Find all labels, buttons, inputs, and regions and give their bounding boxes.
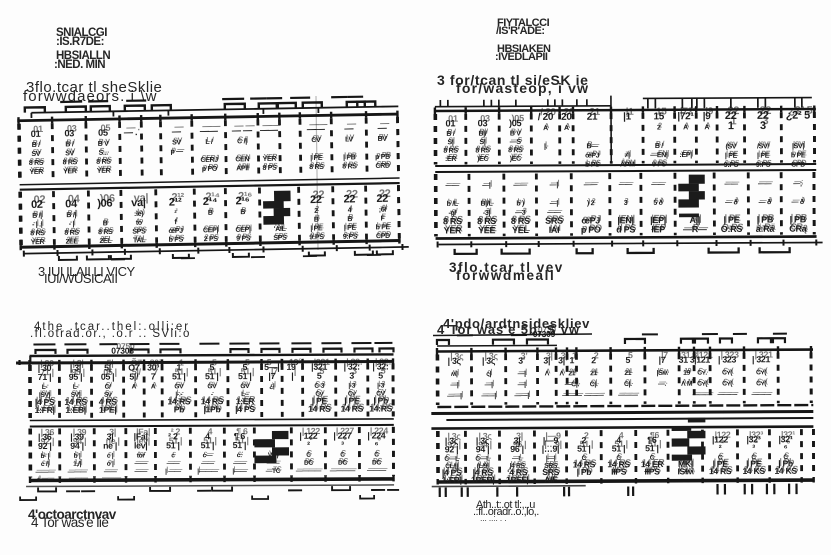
- svg-text:2¹⁴: 2¹⁴: [205, 191, 220, 203]
- svg-text:8 RS: 8 RS: [477, 145, 492, 152]
- svg-text:)EC: )EC: [478, 154, 489, 161]
- svg-text:—|: —|: [519, 380, 528, 387]
- svg-text:1:EB|: 1:EB|: [67, 403, 88, 413]
- svg-text:02: 02: [33, 194, 45, 206]
- svg-text:14 RS: 14 RS: [342, 402, 365, 412]
- svg-text:51 |: 51 |: [580, 439, 594, 449]
- svg-text:SV: SV: [173, 137, 182, 144]
- svg-text:51 |: 51 |: [648, 438, 662, 448]
- svg-text:ƗƗPS: ƗƗPS: [646, 464, 662, 474]
- svg-text:———: ———: [69, 475, 89, 482]
- svg-text:| 3ς: | 3ς: [450, 351, 464, 361]
- svg-text:A: A: [565, 123, 570, 130]
- svg-text:d PS: d PS: [617, 222, 636, 232]
- svg-text:—: —: [380, 118, 390, 128]
- svg-text:— ð: — ð: [726, 196, 738, 204]
- svg-text:Cʏ.: Cʏ.: [698, 368, 708, 375]
- svg-text:3: 3: [625, 198, 629, 205]
- svg-text:≠|: ≠|: [626, 150, 632, 157]
- svg-text:— ð: — ð: [760, 196, 772, 204]
- svg-text:2¹⁶: 2¹⁶: [238, 190, 252, 202]
- svg-text:0730: 0730: [538, 324, 556, 334]
- svg-text:p PO: p PO: [582, 223, 602, 233]
- svg-text:51 |: 51 |: [169, 436, 183, 446]
- svg-text:B /: B /: [448, 129, 456, 136]
- svg-text:14 KS: 14 KS: [776, 464, 799, 474]
- svg-text:B|/: B|/: [480, 129, 488, 136]
- svg-text:51 |: 51 |: [175, 367, 189, 377]
- svg-text:/ 20: / 20: [540, 107, 556, 118]
- svg-text:8 PS: 8 PS: [264, 163, 279, 170]
- svg-text:L-: L-: [43, 382, 49, 389]
- svg-text:B: B: [104, 218, 109, 225]
- svg-text:——: ——: [136, 466, 149, 473]
- svg-text:B—: B—: [588, 141, 600, 148]
- svg-text:| ——: | ——: [166, 466, 182, 473]
- svg-text:| 323: | 323: [721, 350, 740, 360]
- svg-text:AIF: AIF: [545, 472, 558, 482]
- svg-text:œPJ: œPJ: [586, 150, 601, 157]
- svg-text:9 PS: 9 PS: [653, 159, 668, 166]
- svg-text:'AIL: 'AIL: [275, 224, 288, 231]
- svg-text:A: A: [544, 123, 549, 130]
- svg-text:——: ——: [309, 119, 328, 129]
- svg-text:92 |: 92 |: [41, 436, 55, 446]
- svg-text:———: ———: [368, 465, 388, 472]
- svg-text:²: ²: [721, 438, 724, 448]
- svg-text:04: 04: [68, 193, 81, 205]
- svg-text:—|: —|: [451, 380, 460, 387]
- svg-text::le): :le): [135, 209, 144, 216]
- svg-text:lev|: lev|: [136, 436, 150, 446]
- svg-text:8 RS: 8 RS: [66, 228, 81, 235]
- svg-text:——: ——: [620, 179, 634, 186]
- svg-text:)EC: )EC: [511, 154, 522, 161]
- svg-text:14:RS: 14:RS: [370, 401, 393, 411]
- svg-text:———: ———: [102, 475, 122, 482]
- svg-text:——|: ——|: [483, 391, 498, 398]
- svg-text:A: A: [705, 122, 710, 129]
- svg-text:— —: — —: [234, 120, 255, 130]
- svg-text:| PE: | PE: [345, 223, 358, 230]
- svg-text:)06: )06: [100, 193, 115, 205]
- svg-text:51 |: 51 |: [235, 435, 249, 445]
- svg-text:03: 03: [67, 123, 77, 133]
- svg-text:C /|: C /|: [238, 136, 248, 143]
- svg-text:8 RS: 8 RS: [310, 162, 325, 169]
- svg-text:S|: S|: [449, 137, 455, 144]
- svg-text:œPJ: œPJ: [170, 226, 185, 233]
- svg-text:22: 22: [379, 188, 391, 200]
- svg-text:——: ——: [652, 179, 666, 186]
- svg-text:|…9|: |…9|: [544, 439, 561, 449]
- svg-text:b PS: b PS: [170, 235, 185, 242]
- svg-text:2: 2: [594, 350, 599, 360]
- svg-text:ÅPM: ÅPM: [621, 157, 636, 166]
- svg-text:¿|: ¿|: [270, 381, 276, 388]
- svg-text:IAI: IAI: [550, 223, 561, 233]
- svg-text:1,/|: 1,/|: [74, 459, 82, 466]
- svg-text:| PE: | PE: [726, 151, 739, 158]
- svg-text:— .: — .: [126, 122, 140, 132]
- svg-text:—C|.: —C|.: [566, 379, 581, 386]
- svg-text:b PE: b PE: [377, 222, 392, 229]
- svg-text:| 321: | 321: [755, 349, 774, 359]
- svg-text:ʍ|: ʍ|: [451, 369, 459, 376]
- svg-text:c:: c:: [238, 450, 243, 457]
- svg-text:Cʏ(: Cʏ(: [757, 367, 768, 374]
- svg-text:———: ———: [719, 389, 739, 396]
- svg-text:1——: 1——: [38, 475, 55, 482]
- svg-text:|7: |7: [271, 366, 278, 376]
- svg-text:C|.: C|.: [591, 379, 599, 386]
- svg-text:9:PS: 9:PS: [310, 232, 325, 239]
- svg-text:c—: c—: [204, 450, 214, 457]
- svg-text:———: ———: [585, 390, 605, 397]
- svg-text:³: ³: [755, 438, 758, 448]
- svg-text:———: ———: [619, 390, 639, 397]
- svg-text:4 Tor was'e lie: 4 Tor was'e lie: [31, 515, 108, 530]
- svg-text:Cʏ(: Cʏ(: [723, 378, 734, 385]
- svg-text:21: 21: [591, 368, 599, 375]
- svg-text:p —: p —: [172, 146, 185, 153]
- svg-text:ISƗʍ: ISƗʍ: [678, 464, 695, 474]
- svg-text:CERJ: CERJ: [202, 155, 220, 162]
- svg-text:71 |: 71 |: [40, 367, 54, 377]
- svg-text:1: 1: [730, 115, 736, 127]
- svg-text:C-3: C-3: [316, 381, 326, 388]
- svg-text:——: ——: [234, 458, 247, 465]
- svg-text::IS.R7DE:: :IS.R7DE:: [56, 36, 104, 48]
- svg-text:— ð: — ð: [793, 196, 805, 204]
- svg-text:APII: APII: [237, 163, 250, 170]
- svg-text:Λ M: Λ M: [682, 379, 694, 386]
- svg-text:| PE: | PE: [311, 223, 324, 230]
- svg-text:——: ——: [105, 467, 118, 474]
- svg-text:va|: va|: [134, 192, 149, 204]
- svg-text:5: 5: [381, 366, 386, 376]
- svg-text:)05: )05: [512, 113, 525, 123]
- svg-text:b- |: b- |: [42, 451, 51, 458]
- svg-text:5: 5: [319, 366, 324, 376]
- svg-text:20: 20: [564, 107, 575, 118]
- svg-text:|1: |1: [626, 107, 635, 118]
- svg-text:YER: YER: [98, 166, 112, 173]
- svg-text:—|: —|: [483, 180, 492, 187]
- svg-text:22: 22: [313, 189, 325, 201]
- svg-text:YEE: YEE: [479, 223, 496, 233]
- svg-text:———: ———: [69, 467, 89, 474]
- svg-text:|.: |.: [545, 142, 549, 149]
- svg-text:22: 22: [346, 188, 358, 200]
- svg-text:GV: GV: [208, 381, 218, 388]
- svg-text:SV: SV: [66, 148, 75, 155]
- svg-text:1:FR|: 1:FR|: [443, 473, 463, 483]
- svg-text:IƗPS: IƗPS: [612, 465, 628, 475]
- svg-text:—L: —L: [513, 453, 523, 460]
- svg-text:1PER|: 1PER|: [472, 473, 495, 483]
- svg-text:15: 15: [656, 106, 667, 117]
- svg-text:łEP: łEP: [652, 222, 666, 232]
- svg-text:2: 2: [658, 123, 662, 130]
- svg-text:b PE: b PE: [792, 150, 807, 157]
- svg-text:(SV: (SV: [727, 142, 738, 149]
- svg-text:|72¹: |72¹: [680, 106, 697, 117]
- svg-text:to: to: [137, 218, 143, 225]
- svg-text:O:RS: O:RS: [722, 222, 744, 232]
- svg-text:for/wasteop, i vw: for/wasteop, i vw: [456, 80, 589, 96]
- svg-text:| PB: | PB: [344, 152, 357, 159]
- svg-text:3|: 3|: [546, 351, 553, 361]
- svg-text:|-3: |-3: [378, 380, 385, 387]
- svg-text:——: ——: [447, 180, 461, 187]
- svg-text:SV: SV: [33, 149, 42, 156]
- svg-text:p PO: p PO: [203, 164, 219, 171]
- svg-text:——: ——: [202, 121, 221, 131]
- svg-text:LV: LV: [346, 134, 355, 141]
- svg-text:9:PS: 9:PS: [757, 160, 772, 167]
- svg-text:GV: GV: [176, 381, 186, 388]
- svg-text:—;: —;: [794, 179, 803, 186]
- svg-text:—TC: —TC: [267, 466, 282, 473]
- svg-text:—.: —.: [659, 379, 668, 386]
- svg-text:C: C: [375, 449, 380, 456]
- svg-text:|——: |——: [234, 466, 249, 473]
- svg-text:8 RS: 8 RS: [97, 157, 112, 164]
- svg-text:2EE: 2EE: [67, 236, 80, 243]
- svg-text:b PS: b PS: [586, 160, 601, 167]
- svg-text:B: B: [348, 214, 353, 221]
- svg-text:b |: b |: [75, 451, 82, 458]
- svg-text:|121: |121: [697, 350, 713, 360]
- svg-text:|7: |7: [661, 350, 668, 360]
- svg-text:tor: tor: [138, 450, 147, 457]
- svg-text:CPD: CPD: [377, 231, 391, 238]
- svg-text:14 RS: 14 RS: [309, 402, 332, 412]
- svg-text:A: A: [152, 381, 157, 388]
- svg-text:|—|: |—|: [547, 453, 557, 460]
- svg-text:3|: 3|: [561, 351, 568, 361]
- svg-text:96 |: 96 |: [513, 439, 527, 449]
- svg-text:CV: CV: [312, 135, 322, 142]
- svg-text:——: ——: [136, 458, 149, 465]
- svg-text:———: ———: [753, 389, 773, 396]
- svg-text:—: —: [347, 118, 357, 128]
- svg-text:YER: YER: [64, 166, 78, 173]
- svg-text:21: 21: [626, 368, 634, 375]
- svg-text:—|: —|: [486, 380, 495, 387]
- svg-text:CEP|: CEP|: [237, 225, 253, 232]
- svg-text:| 3ς: | 3ς: [485, 351, 499, 361]
- svg-text:C: C: [341, 450, 346, 457]
- svg-text:—|: —|: [551, 198, 560, 205]
- svg-text:S...: S...: [100, 148, 110, 155]
- svg-text:————: ————: [331, 466, 357, 473]
- svg-text:9:PS: 9:PS: [725, 160, 740, 167]
- svg-text:9:PS: 9:PS: [344, 231, 359, 238]
- svg-text::ER: :ER: [446, 154, 457, 161]
- svg-text:19: 19: [684, 368, 692, 375]
- svg-text:———: ———: [563, 390, 583, 397]
- svg-text:—S: —S: [511, 137, 523, 144]
- svg-text:21: 21: [589, 107, 600, 118]
- svg-text:³: ³: [344, 435, 347, 445]
- svg-text:——: ——: [515, 180, 529, 187]
- svg-text:Cʏ(: Cʏ(: [757, 378, 768, 385]
- svg-text:|———: |———: [198, 466, 219, 473]
- svg-text:YER: YER: [264, 154, 278, 161]
- svg-text:51 |: 51 |: [241, 366, 255, 376]
- svg-text:SPS: SPS: [274, 233, 288, 240]
- svg-text:S|: S|: [481, 137, 487, 144]
- svg-text:8 RS: 8 RS: [30, 158, 45, 165]
- svg-text:—|: —|: [519, 369, 528, 376]
- svg-text:... ..:. . .: ... ..:. . .: [480, 513, 506, 523]
- svg-text:—EN|: —EN|: [651, 150, 669, 157]
- svg-text:2EL: 2EL: [101, 236, 114, 243]
- svg-text:——: ——: [759, 179, 773, 186]
- svg-text:2: 2: [315, 206, 319, 213]
- svg-text:L /: L /: [206, 137, 214, 144]
- svg-text:5 ð: 5 ð: [655, 197, 664, 205]
- svg-text:B /: B /: [656, 141, 664, 148]
- svg-text:05 |: 05 |: [103, 367, 117, 377]
- svg-text:c /|: c /|: [42, 459, 50, 466]
- svg-text:9 PS: 9 PS: [237, 233, 252, 240]
- svg-text:) 2: ) 2: [588, 198, 596, 205]
- svg-text:05: 05: [101, 123, 111, 133]
- svg-text:B: B: [209, 208, 214, 215]
- svg-text:——: ——: [262, 120, 281, 130]
- svg-text:7: 7: [153, 367, 158, 377]
- svg-text:C|.: C|.: [625, 379, 633, 386]
- svg-text:————: ————: [297, 466, 323, 473]
- svg-text:5: 5: [628, 350, 633, 360]
- svg-text:b /L: b /L: [448, 199, 460, 206]
- svg-text:——|: ——|: [516, 391, 531, 398]
- svg-text:DC: DC: [373, 457, 382, 464]
- svg-text:Cʏ(: Cʏ(: [723, 367, 734, 374]
- svg-text:B|/L: B|/L: [482, 199, 495, 206]
- svg-text:C: C: [307, 450, 312, 457]
- svg-text:C—L: C—L: [476, 454, 491, 461]
- svg-text:94 |: 94 |: [73, 436, 87, 446]
- svg-text:ĆRą: ĆRą: [790, 221, 808, 232]
- svg-text:ä:Rä: ä:Rä: [757, 222, 777, 232]
- svg-text:1: 1: [572, 350, 577, 360]
- svg-text:5|/: 5|/: [132, 367, 142, 377]
- svg-text:b ): b ): [518, 198, 526, 205]
- svg-text:| Pb: | Pb: [578, 465, 593, 475]
- svg-text::EP|: :EP|: [681, 150, 694, 157]
- svg-text:SPS: SPS: [134, 226, 148, 233]
- svg-text:——: ——: [168, 458, 181, 465]
- svg-text:YER: YER: [445, 223, 463, 233]
- svg-text:——: ——: [202, 458, 215, 465]
- svg-text:3: 3: [763, 115, 769, 127]
- svg-text:CRD: CRD: [377, 161, 392, 168]
- svg-text:A: A: [133, 382, 138, 389]
- svg-text:51 |: 51 |: [203, 435, 217, 445]
- svg-text:|-3: |-3: [350, 381, 357, 388]
- svg-text:DC: DC: [339, 458, 348, 465]
- svg-text:B /: B /: [33, 140, 42, 147]
- svg-text:IUI/WUSICAII: IUI/WUSICAII: [44, 271, 117, 286]
- svg-text:|9: |9: [705, 106, 714, 117]
- svg-text:94 |: 94 |: [478, 439, 492, 449]
- svg-text:51 |: 51 |: [208, 366, 222, 376]
- svg-text:4: 4: [349, 205, 353, 212]
- svg-text:CEN: CEN: [236, 154, 250, 161]
- svg-text:8 RS: 8 RS: [509, 145, 524, 152]
- svg-text:B /: B /: [67, 139, 76, 146]
- svg-text:03: 03: [480, 113, 490, 123]
- svg-text:L-: L-: [74, 382, 80, 389]
- svg-text:DC: DC: [305, 458, 314, 465]
- svg-text:92 |: 92 |: [447, 439, 461, 449]
- svg-text:8 RS: 8 RS: [31, 228, 46, 235]
- svg-text:2 PS: 2 PS: [205, 234, 220, 241]
- svg-text:B /|: B /|: [68, 210, 78, 217]
- svg-text:BV: BV: [379, 134, 389, 141]
- svg-text:YER: YER: [31, 167, 45, 174]
- svg-text:|SV|: |SV|: [793, 141, 805, 148]
- svg-text:——: ——: [585, 180, 599, 187]
- svg-text:———: ———: [694, 390, 714, 397]
- svg-text:YEL: YEL: [513, 223, 530, 233]
- svg-text:GV: GV: [241, 381, 251, 388]
- svg-text:| PE: | PE: [311, 153, 324, 160]
- svg-text:forwwdmeall: forwwdmeall: [456, 268, 555, 283]
- svg-text:CPD: CPD: [792, 160, 806, 167]
- svg-text:B V: B V: [99, 139, 111, 146]
- svg-text:2¹²: 2¹²: [171, 192, 184, 204]
- svg-text:8 RS: 8 RS: [444, 146, 459, 153]
- svg-text:;6ł: ;6ł: [380, 205, 388, 212]
- svg-text:ς|: ς|: [487, 369, 492, 376]
- svg-text:p PB: p PB: [376, 152, 391, 159]
- svg-text:B: B: [241, 207, 246, 214]
- svg-text:TAL: TAL: [134, 235, 147, 242]
- svg-text:¿2² 5: ¿2² 5: [788, 105, 812, 117]
- svg-text:———: ———: [37, 467, 57, 474]
- svg-text:21: 21: [570, 368, 578, 375]
- svg-text:C/: C/: [106, 382, 112, 389]
- svg-text:Cʏ(: Cʏ(: [698, 379, 709, 386]
- svg-text:B /|: B /|: [33, 211, 43, 218]
- svg-text:1:FR|: 1:FR|: [36, 403, 56, 413]
- svg-text:/IS'R'ADE:: /IS'R'ADE:: [496, 25, 545, 37]
- svg-text:o |: o |: [108, 459, 115, 466]
- svg-text:YER: YER: [32, 237, 46, 244]
- svg-text:- |: - |: [70, 219, 76, 226]
- svg-text:⁶: ⁶: [377, 435, 381, 445]
- svg-text:|4 PS: |4 PS: [236, 402, 256, 412]
- svg-text:c |: c |: [108, 451, 115, 458]
- svg-text:—: —: [174, 122, 184, 132]
- svg-text:²: ²: [310, 435, 313, 445]
- svg-text:—|: —|: [551, 180, 560, 187]
- svg-text:1PE|: 1PE|: [100, 403, 117, 413]
- svg-text:14 KS: 14 KS: [744, 464, 767, 474]
- svg-text:⁶: ⁶: [786, 438, 790, 448]
- svg-text:- | .|: - | .|: [33, 219, 44, 226]
- svg-text:1PEF|: 1PEF|: [507, 473, 529, 483]
- svg-text:95 |: 95 |: [71, 367, 85, 377]
- svg-text:|1Pb: |1Pb: [205, 402, 222, 412]
- svg-text:01: 01: [448, 114, 458, 124]
- svg-text:—R—: —R—: [684, 222, 708, 232]
